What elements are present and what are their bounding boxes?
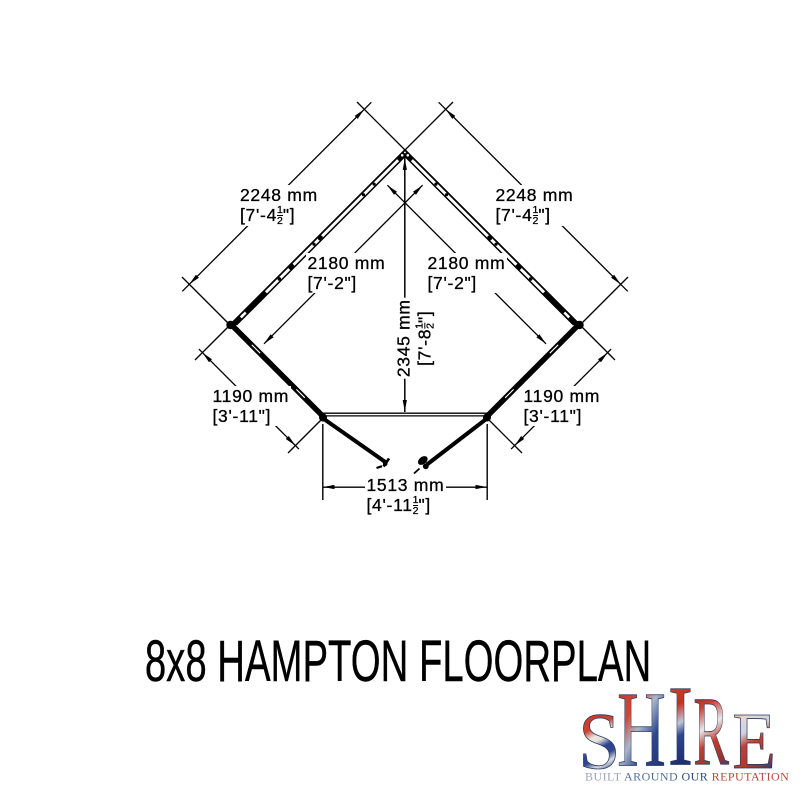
- svg-text:BUILT AROUND OUR REPUTATION: BUILT AROUND OUR REPUTATION: [585, 770, 789, 784]
